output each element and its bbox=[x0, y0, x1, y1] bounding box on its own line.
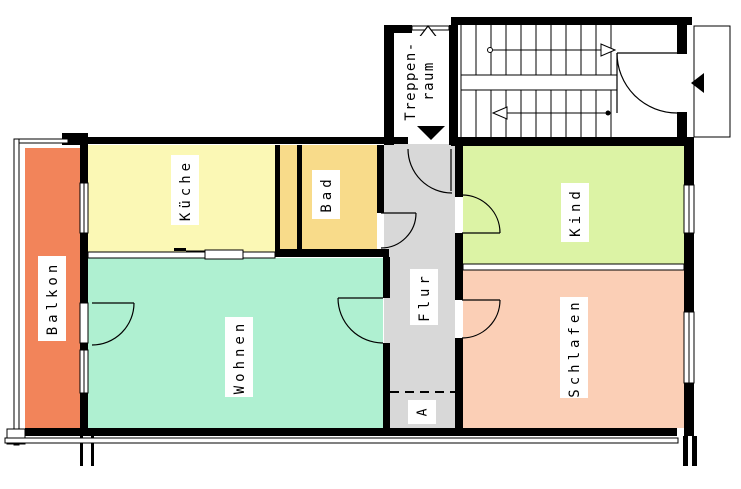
wall-bottom bbox=[25, 428, 677, 436]
stair-down-run-arrow bbox=[493, 107, 611, 119]
wall-right-2 bbox=[684, 233, 694, 312]
wall-left-3 bbox=[80, 343, 88, 350]
kind-window bbox=[684, 185, 694, 233]
label-schlafen: Schlafen bbox=[567, 298, 583, 397]
wall-bad-right bbox=[377, 145, 384, 213]
wall-flur-kind-1 bbox=[455, 144, 463, 197]
label-treppenraum-line2: raum bbox=[421, 61, 437, 101]
label-balkon: Balkon bbox=[45, 261, 61, 336]
label-kind: Kind bbox=[568, 187, 584, 237]
wall-flur-schlafen bbox=[455, 338, 463, 428]
stairs-down-arrow-icon bbox=[417, 126, 445, 140]
wall-wohnen-flur-1 bbox=[383, 257, 390, 298]
wall-stair-left bbox=[384, 25, 394, 145]
wall-bad-bottom bbox=[275, 249, 389, 257]
wall-right-3 bbox=[684, 383, 694, 436]
wall-left-1 bbox=[80, 137, 88, 183]
wall-flur-top-right bbox=[452, 137, 464, 144]
wall-flur-top-left bbox=[384, 137, 408, 144]
kueche-balcony-window bbox=[80, 183, 88, 233]
wall-kueche-wohnen bbox=[88, 252, 275, 258]
wall-stair-right-upper bbox=[677, 24, 687, 54]
wohnen-balcony-door-opening bbox=[80, 303, 88, 343]
kueche-counter-tick bbox=[174, 248, 186, 251]
wall-stair-column-top bbox=[388, 25, 412, 33]
label-kueche: Küche bbox=[178, 159, 194, 221]
label-treppenraum-line1: Treppen- bbox=[403, 41, 419, 120]
staircase bbox=[417, 25, 704, 140]
wall-right-stub-a bbox=[683, 436, 688, 466]
wall-shaft-left bbox=[275, 145, 280, 252]
wall-stair-top bbox=[451, 17, 692, 25]
floor-plan: Balkon Küche Bad Wohnen Flur Kind Schlaf… bbox=[0, 0, 741, 489]
duct-shaft bbox=[280, 145, 297, 249]
lower-neighbour-wall-line bbox=[5, 438, 678, 443]
wall-stair-column-right bbox=[449, 25, 458, 145]
wall-right-stub-b bbox=[692, 436, 697, 466]
schlafen-window bbox=[684, 312, 694, 383]
label-wohnen: Wohnen bbox=[232, 320, 248, 395]
wall-shaft-right bbox=[297, 145, 302, 252]
wall-kind-schlafen bbox=[463, 264, 684, 270]
wall-top-left bbox=[62, 137, 392, 144]
floor-plan-page: Balkon Küche Bad Wohnen Flur Kind Schlaf… bbox=[0, 0, 741, 489]
label-storage-a: A bbox=[416, 408, 431, 417]
building-entrance-door bbox=[617, 53, 677, 113]
wall-top-right bbox=[451, 137, 694, 146]
wohnen-balcony-window bbox=[80, 350, 88, 393]
balcony-parapet-top bbox=[14, 139, 68, 143]
stair-treads bbox=[476, 25, 611, 137]
wall-flur-kind-2 bbox=[455, 233, 463, 300]
label-bad: Bad bbox=[319, 175, 335, 212]
kueche-wohnen-opening bbox=[205, 250, 243, 259]
wall-left-2 bbox=[80, 233, 88, 303]
wall-right-1 bbox=[684, 137, 694, 185]
balcony-parapet-left bbox=[14, 139, 19, 445]
label-flur: Flur bbox=[417, 272, 433, 322]
wall-wohnen-flur-2 bbox=[383, 343, 390, 428]
